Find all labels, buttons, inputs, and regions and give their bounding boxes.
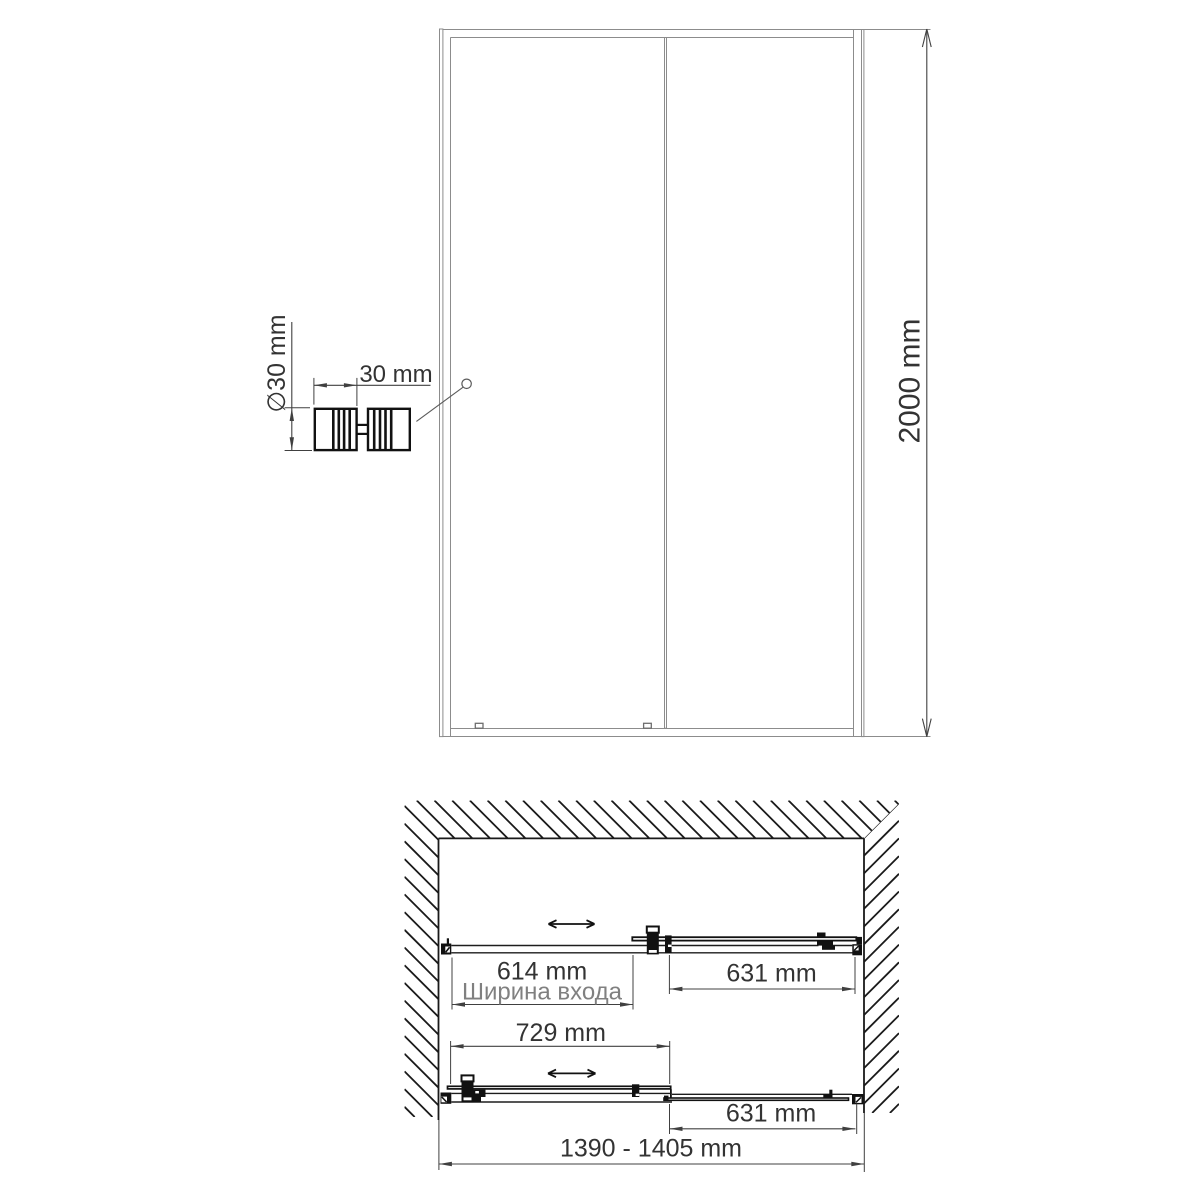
svg-text:631 mm: 631 mm <box>726 959 816 987</box>
svg-text:631 mm: 631 mm <box>726 1099 816 1127</box>
svg-text:1390 - 1405 mm: 1390 - 1405 mm <box>560 1135 742 1163</box>
svg-text:Ширина входа: Ширина входа <box>462 978 623 1005</box>
svg-text:2000 mm: 2000 mm <box>894 318 927 443</box>
svg-text:∅30 mm: ∅30 mm <box>263 314 291 412</box>
svg-text:729 mm: 729 mm <box>516 1019 606 1047</box>
svg-text:30 mm: 30 mm <box>359 361 432 388</box>
